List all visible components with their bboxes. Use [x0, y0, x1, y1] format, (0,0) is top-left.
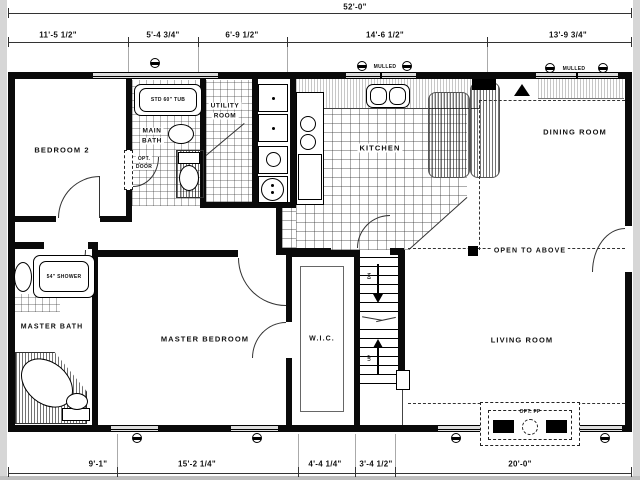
room-label-utility-1: UTILITY: [209, 103, 242, 110]
opt-door-label-2: DOOR: [134, 164, 154, 170]
wall-bedroom2-bottom-b: [100, 216, 132, 222]
room-label-living: LIVING ROOM: [491, 336, 554, 345]
kitchen-sink-basin-2: [389, 87, 406, 105]
dim-tick: [128, 37, 129, 47]
right-edge-strip: [633, 0, 640, 480]
room-label-kitchen: KITCHEN: [357, 144, 402, 153]
open-above-dash-left: [479, 100, 480, 250]
wall-wic-left-a: [286, 257, 292, 322]
open-above-post: [468, 246, 478, 256]
mainbath-sink: [168, 124, 194, 144]
extension-line: [198, 47, 199, 72]
room-label-dining: DINING ROOM: [543, 128, 607, 137]
mulled-label-dining: MULLED: [563, 66, 586, 72]
window-symbol-living-1: [451, 433, 461, 443]
window-symbol-kitchen-1: [357, 61, 367, 71]
extension-line: [395, 434, 396, 467]
dim-tick: [298, 467, 299, 477]
living-room-window-1: [438, 425, 482, 432]
bearing-point-marker: [514, 84, 530, 96]
master-bedroom-window-2: [231, 425, 278, 432]
entry-door-arc: [592, 228, 625, 272]
utility-cabinet-1-knob: [272, 97, 275, 100]
dim-label-bottom-5: 20'-0": [506, 460, 534, 469]
shower-label: 54" SHOWER: [47, 274, 82, 280]
window-symbol-dining-2: [598, 63, 608, 73]
dim-tick: [287, 37, 288, 47]
dim-tick: [8, 467, 9, 477]
refrigerator: [298, 154, 322, 200]
dim-tick: [355, 467, 356, 477]
water-heater: [261, 178, 284, 201]
dim-label-bottom-4: 3'-4 1/2": [357, 460, 394, 469]
cooktop-burner-2: [300, 134, 316, 150]
wall-wd-right: [290, 79, 296, 202]
room-label-utility-2: ROOM: [212, 113, 239, 120]
window-symbol-dining-1: [545, 63, 555, 73]
left-edge-strip: [0, 0, 7, 480]
wall-masterbedroom-top-a: [92, 250, 238, 257]
dining-window-ledge: [538, 79, 624, 99]
opt-fireplace-block-right: [546, 420, 567, 433]
masterbedroom-door-arc: [238, 258, 286, 306]
bathtub-label: STD 60" TUB: [151, 97, 185, 103]
extension-line: [117, 434, 118, 467]
extension-line: [355, 434, 356, 467]
room-label-master-bedroom: MASTER BEDROOM: [161, 335, 249, 344]
dim-tick: [117, 467, 118, 477]
kitchen-sink-basin-1: [370, 87, 387, 105]
room-label-main-bath-2: BATH: [140, 138, 164, 145]
kitchen-window-mullion: [380, 72, 382, 79]
stair-up-arrow-shaft: [377, 348, 379, 374]
dim-label-bottom-2: 15'-2 1/4": [176, 460, 218, 469]
mainbath-toilet-bowl: [179, 165, 199, 191]
extension-line: [128, 47, 129, 72]
stair-wall-stub: [472, 79, 496, 90]
water-heater-dot-2: [271, 191, 274, 194]
dim-tick: [8, 37, 9, 47]
window-symbol-mbr-1: [132, 433, 142, 443]
dim-tick: [198, 37, 199, 47]
floor-plan-canvas: STD 60" TUB DN UP 54" SHOWER: [0, 0, 640, 480]
wall-wic-left-b: [286, 358, 292, 425]
opt-fireplace-flue: [522, 419, 538, 435]
stair-up-label: UP: [367, 355, 372, 361]
opt-fireplace-block-left: [493, 420, 514, 433]
dim-label-top-2: 5'-4 3/4": [144, 31, 181, 40]
stair-newel-post: [396, 370, 410, 390]
cooktop-burner-1: [300, 116, 316, 132]
wall-masterbath-top-a: [8, 242, 44, 249]
bottom-edge-strip: [0, 476, 640, 480]
masterbath-toilet-bowl: [66, 393, 88, 410]
opt-door-label-1: OPT.: [136, 156, 152, 162]
stair-upper-flight-hatch-right: [470, 82, 500, 178]
extension-line: [287, 47, 288, 72]
dim-label-bottom-3: 4'-4 1/4": [306, 460, 343, 469]
living-room-window-2: [578, 425, 622, 432]
open-above-dash-top: [479, 100, 625, 101]
dim-tick: [631, 8, 632, 18]
utility-tile-floor: [206, 80, 252, 202]
wall-stairs-right: [398, 250, 405, 372]
stair-up-arrow-head: [373, 339, 383, 348]
masterbath-pedestal-sink: [14, 262, 32, 292]
dimension-line-overall: [8, 13, 632, 14]
dimension-line-top: [8, 42, 632, 43]
dim-tick: [487, 37, 488, 47]
opt-door-dashed-opening: [124, 150, 133, 190]
bedroom2-window: [93, 72, 218, 79]
stair-down-arrow-shaft: [377, 264, 379, 294]
stair-down-label: DN: [367, 273, 372, 280]
dim-label-overall: 52'-0": [341, 3, 369, 12]
exterior-wall-left: [8, 72, 15, 432]
wall-bedroom2-bottom-a: [8, 216, 56, 222]
extension-line: [487, 47, 488, 72]
extension-line: [298, 434, 299, 467]
wic-door-arc: [252, 322, 286, 358]
room-label-main-bath-1: MAIN: [140, 128, 163, 135]
dim-tick: [631, 37, 632, 47]
bedroom2-door-leaf: [99, 176, 100, 218]
dim-label-top-4: 14'-6 1/2": [364, 31, 406, 40]
kitchen-tile-floor-corner: [282, 208, 296, 248]
dimension-line-bottom: [8, 473, 632, 474]
dim-label-top-5: 13'-9 3/4": [547, 31, 589, 40]
stair-down-arrow-head: [373, 294, 383, 303]
dim-label-bottom-1: 9'-1": [87, 460, 110, 469]
dim-label-top-1: 11'-5 1/2": [37, 31, 79, 40]
room-label-wic: W.I.C.: [309, 336, 335, 343]
wall-masterbedroom-top-b: [286, 250, 360, 257]
bedroom2-door-arc: [58, 176, 100, 218]
room-label-bedroom2: BEDROOM 2: [34, 146, 89, 155]
window-symbol-bedroom2: [150, 58, 160, 68]
water-heater-dot-1: [271, 184, 274, 187]
room-label-master-bath: MASTER BATH: [21, 324, 84, 331]
washer-door: [266, 152, 281, 167]
entry-door-opening: [625, 226, 632, 272]
dim-label-top-3: 6'-9 1/2": [223, 31, 260, 40]
master-bedroom-window-1: [111, 425, 158, 432]
mainbath-toilet-tank: [178, 152, 200, 164]
label-open-to-above: OPEN TO ABOVE: [492, 248, 568, 255]
window-symbol-mbr-2: [252, 433, 262, 443]
dim-tick: [395, 467, 396, 477]
dining-window-mullion: [576, 72, 578, 79]
mulled-label-kitchen: MULLED: [374, 64, 397, 70]
dim-tick: [631, 467, 632, 477]
utility-cabinet-2-knob: [272, 127, 275, 130]
window-symbol-living-2: [600, 433, 610, 443]
window-symbol-kitchen-2: [402, 61, 412, 71]
opt-fireplace-label: OPT. FP: [520, 409, 541, 415]
stair-upper-flight-hatch-left: [428, 92, 470, 178]
dim-tick: [8, 8, 9, 18]
